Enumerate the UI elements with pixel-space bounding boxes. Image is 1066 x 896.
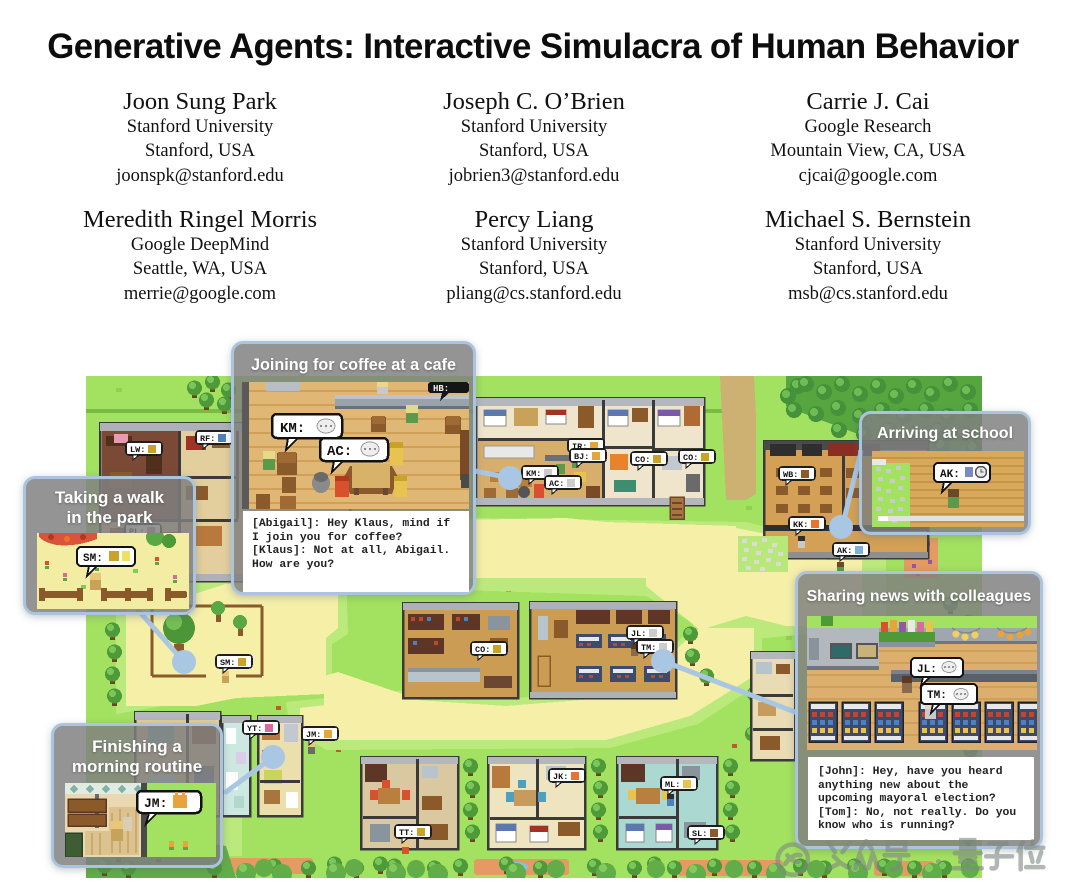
svg-text:TT:: TT:: [399, 828, 414, 838]
svg-text:WB:: WB:: [783, 470, 798, 480]
svg-text:ML:: ML:: [665, 780, 680, 790]
svg-text:AC:: AC:: [327, 444, 352, 460]
svg-text:JM:: JM:: [306, 730, 321, 740]
svg-text:CO:: CO:: [635, 455, 650, 465]
svg-text:JL:: JL:: [917, 664, 937, 676]
svg-text:SM:: SM:: [83, 553, 103, 565]
svg-text:TM:: TM:: [641, 643, 656, 653]
svg-text:KK:: KK:: [793, 520, 808, 530]
svg-text:SL:: SL:: [692, 829, 707, 839]
svg-text:KM:: KM:: [280, 421, 305, 437]
svg-text:LW:: LW:: [130, 445, 145, 455]
svg-text:KM:: KM:: [526, 469, 541, 479]
svg-text:AK:: AK:: [940, 469, 960, 481]
svg-text:SM:: SM:: [220, 658, 235, 668]
svg-text:JL:: JL:: [631, 629, 646, 639]
svg-text:JK:: JK:: [553, 772, 568, 782]
svg-text:AC:: AC:: [549, 479, 564, 489]
svg-text:JM:: JM:: [144, 796, 167, 811]
svg-text:AK:: AK:: [837, 546, 852, 556]
svg-text:HB:: HB:: [433, 384, 449, 394]
svg-text:TM:: TM:: [927, 690, 947, 702]
svg-text:CO:: CO:: [475, 645, 490, 655]
svg-text:BJ:: BJ:: [574, 452, 589, 462]
svg-text:RF:: RF:: [200, 434, 215, 444]
svg-text:YT:: YT:: [247, 724, 262, 734]
svg-text:CO:: CO:: [683, 453, 698, 463]
